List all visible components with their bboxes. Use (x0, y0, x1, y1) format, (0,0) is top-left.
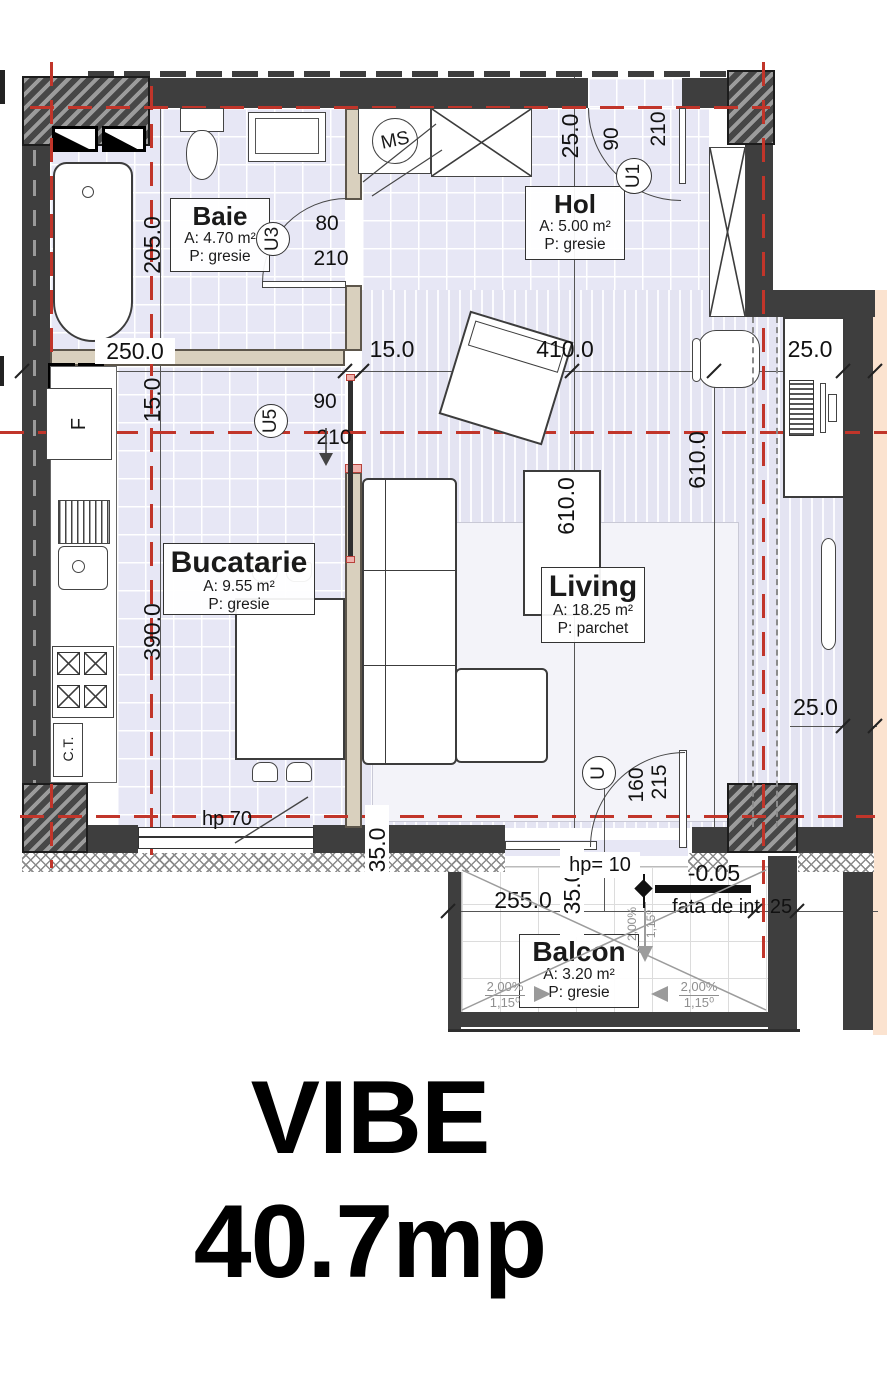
door-id: U (588, 766, 610, 780)
sofa (362, 478, 457, 765)
sofa-chaise (455, 668, 548, 763)
toilet-bowl (186, 130, 218, 180)
slope-degrees: 1,15⁰ (684, 995, 715, 1010)
kitchen-sink-drain (72, 560, 85, 573)
sink-drainer (58, 500, 110, 544)
washing-machine-label: MS (379, 127, 411, 154)
axis-red-right (762, 62, 765, 958)
burner (57, 685, 80, 708)
room-name: Living (542, 571, 644, 602)
burner (84, 652, 107, 675)
vent-block (102, 126, 146, 152)
room-label-bucatarie: Bucatarie A: 9.55 m² P: gresie (163, 543, 315, 615)
dim-baie-height: 205.0 (140, 200, 164, 290)
keyboard (789, 380, 814, 436)
edge-artifact (0, 70, 5, 104)
dim-living-610-a: 610.0 (554, 461, 578, 551)
sofa-cushion-line (364, 570, 455, 571)
room-area: A: 3.20 m² (520, 966, 638, 984)
room-name: Baie (171, 202, 269, 230)
door-u3-height: 210 (303, 246, 359, 272)
floor-plan: MS F C.T. Baie (0, 0, 887, 1378)
adjacent-unit-floor (873, 290, 887, 1035)
monitor (820, 383, 826, 433)
tv-unit (821, 538, 836, 650)
balcony-rail-line (448, 1029, 800, 1032)
dim-25: 25.0 (770, 336, 850, 362)
slope-arrow-right-icon (534, 986, 551, 1002)
dim-15: 15.0 (352, 336, 432, 362)
dim-hol-25: 25.0 (558, 91, 582, 181)
door-u-height: 215 (649, 742, 671, 822)
level-marker-bar (655, 885, 751, 893)
foundation-hatch (22, 853, 505, 872)
room-label-baie: Baie A: 4.70 m² P: gresie (170, 198, 270, 272)
sofa-cushion-line (364, 665, 455, 666)
plan-title-area: 40.7mp (30, 1180, 710, 1304)
door-id: U1 (623, 164, 645, 188)
door-tag-u: U (582, 756, 616, 790)
bottom-wall-4 (798, 827, 843, 853)
left-wall-insulation (33, 150, 36, 864)
vent-block (52, 126, 98, 152)
door-u3-width: 80 (305, 211, 349, 237)
desk-chair-back (692, 338, 701, 382)
right-wall-main (843, 317, 873, 1030)
room-name: Hol (526, 190, 624, 218)
dim-kitchen-height: 390.0 (140, 587, 164, 677)
burner (84, 685, 107, 708)
top-wall-stub (682, 78, 727, 108)
axis-red-bottom (20, 815, 875, 818)
room-floor: P: gresie (171, 248, 269, 266)
tall-cabinet (709, 147, 746, 317)
top-wall (88, 78, 588, 108)
sink-basin (255, 118, 319, 154)
left-wall (22, 146, 50, 868)
door-u1-height: 210 (648, 89, 670, 169)
bottom-wall-3 (692, 827, 727, 853)
plan-title: VIBE 40.7mp (30, 1056, 710, 1304)
burner (57, 652, 80, 675)
room-floor: P: parchet (542, 620, 644, 638)
bottom-wall-2 (313, 825, 505, 853)
overhead-guide-line (776, 317, 778, 827)
sliding-cap-top (346, 374, 355, 381)
door-u-width: 160 (626, 745, 648, 825)
dim-balcony-width: 255.0 (483, 887, 563, 913)
column-bottom-left (22, 783, 88, 853)
room-name: Bucatarie (164, 547, 314, 578)
door-u1-width: 90 (601, 99, 623, 179)
overhead-guide-line (752, 317, 754, 827)
kitchen-chair (286, 762, 312, 782)
slope-degrees: 1,15⁰ (490, 995, 521, 1010)
room-label-hol: Hol A: 5.00 m² P: gresie (525, 186, 625, 260)
kitchen-chair (252, 762, 278, 782)
dim-line-right-vertical (714, 366, 715, 828)
balcony-wall-bottom (448, 1012, 768, 1027)
bottom-wall-1 (88, 825, 138, 853)
plan-title-name: VIBE (30, 1056, 710, 1180)
slope-center-degrees: 1,15⁰ (643, 894, 659, 954)
dim-axis-15: 15.0 (140, 355, 164, 445)
door-u5-width: 90 (303, 389, 347, 415)
slope-percent: 2,00% (679, 980, 720, 996)
level-value: -0.05 (668, 860, 760, 886)
slope-arrow-left-icon (651, 986, 668, 1002)
boiler-label: C.T. (57, 719, 79, 779)
slope-right: 2,00% 1,15⁰ (672, 980, 726, 1011)
room-name: Balcon (520, 938, 638, 966)
level-label: fata de int (660, 894, 772, 920)
door-id: U5 (260, 409, 282, 433)
bathroom-sink (248, 112, 326, 162)
stove (52, 646, 114, 718)
slope-percent: 2,00% (485, 980, 526, 996)
dim-right-wall-25: 25.0 (773, 694, 858, 720)
fridge-label: F (67, 394, 91, 454)
dim-living-610-b: 610.0 (685, 415, 709, 505)
door-u5-height: 210 (306, 425, 362, 451)
note-hp-balcony: hp= 10 (560, 852, 640, 878)
closet-x-icon (432, 109, 531, 176)
edge-artifact (0, 356, 4, 386)
balcony-wall-right (768, 856, 797, 1029)
sliding-door-panel (348, 380, 353, 558)
room-area: A: 4.70 m² (171, 230, 269, 248)
hall-closet (431, 108, 532, 177)
monitor-base (828, 394, 837, 422)
right-wall-upper (745, 143, 773, 290)
room-label-living: Living A: 18.25 m² P: parchet (541, 567, 645, 643)
dim-wall-thickness: 35.0 (365, 805, 389, 895)
slope-left: 2,00% 1,15⁰ (478, 980, 532, 1011)
desk-chair (698, 330, 760, 388)
dim-410: 410.0 (525, 336, 605, 362)
room-area: A: 5.00 m² (526, 218, 624, 236)
top-wall-outer-dashes (88, 71, 727, 77)
room-floor: P: gresie (526, 236, 624, 254)
door-tag-u3: U3 (256, 222, 290, 256)
washing-machine-drum: MS (372, 118, 418, 164)
room-area: A: 18.25 m² (542, 602, 644, 620)
sofa-backrest-line (385, 480, 386, 763)
note-hp-window: hp 70 (190, 806, 264, 832)
slope-center-percent: 2,00% (624, 894, 640, 954)
room-area: A: 9.55 m² (164, 578, 314, 596)
kitchen-table (235, 598, 345, 760)
foundation-hatch (798, 853, 874, 872)
balcony-wall-left (448, 866, 461, 1029)
cabinet-x-icon (710, 148, 745, 316)
room-floor: P: gresie (164, 596, 314, 614)
door-tag-u5: U5 (254, 404, 288, 438)
toilet-tank (180, 108, 224, 132)
sliding-cap-bottom (346, 556, 355, 563)
door-id: U3 (262, 227, 284, 251)
bathtub-drain (82, 186, 94, 198)
